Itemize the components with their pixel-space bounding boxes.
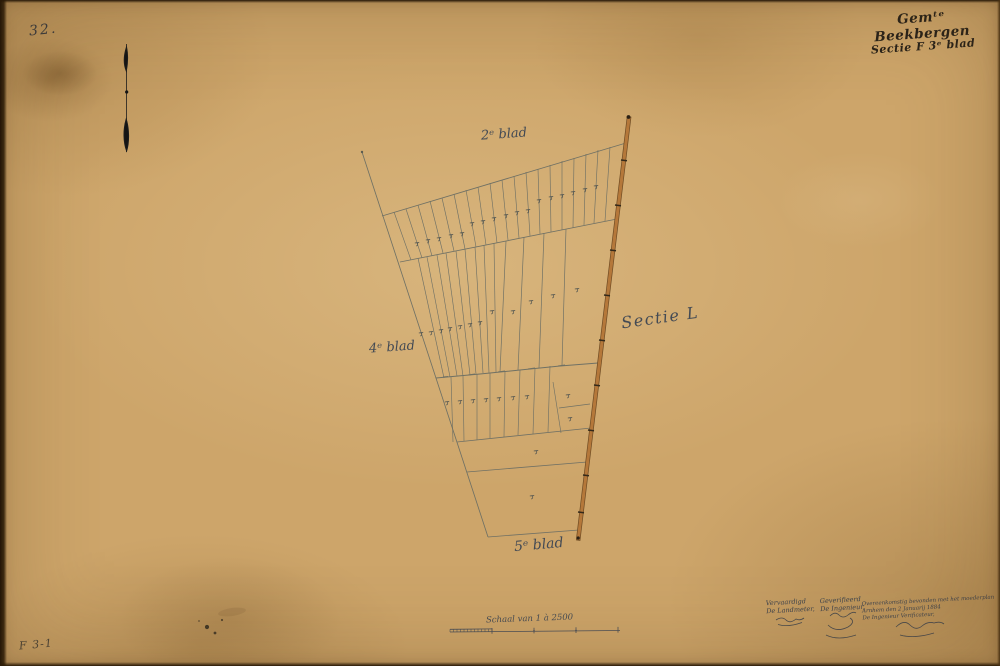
- surveyor-signature: [776, 618, 804, 626]
- verifier-signature: [896, 622, 944, 636]
- scale-bar: [450, 627, 620, 634]
- certification-made-by: Vervaardigd De Landmeter,: [766, 598, 815, 616]
- certification-verified-by: Geverifieerd De Ingenieur,: [820, 596, 865, 613]
- north-arrow-icon: [124, 44, 129, 152]
- adjacent-sheet-label-top: 2ᵉ blad: [481, 125, 528, 143]
- adjacent-sheet-label-left: 4ᵉ blad: [369, 338, 416, 356]
- map-sheet: 32. Gemᵗᵉ Beekbergen Sectie F 3ᵉ blad 2ᵉ…: [0, 0, 1000, 666]
- engineer-signature: [826, 612, 856, 638]
- parcel-number-marks: [415, 185, 598, 499]
- map-canvas: [0, 0, 1000, 666]
- ink-smudge: [198, 606, 246, 634]
- sheet-number: 32.: [28, 21, 58, 40]
